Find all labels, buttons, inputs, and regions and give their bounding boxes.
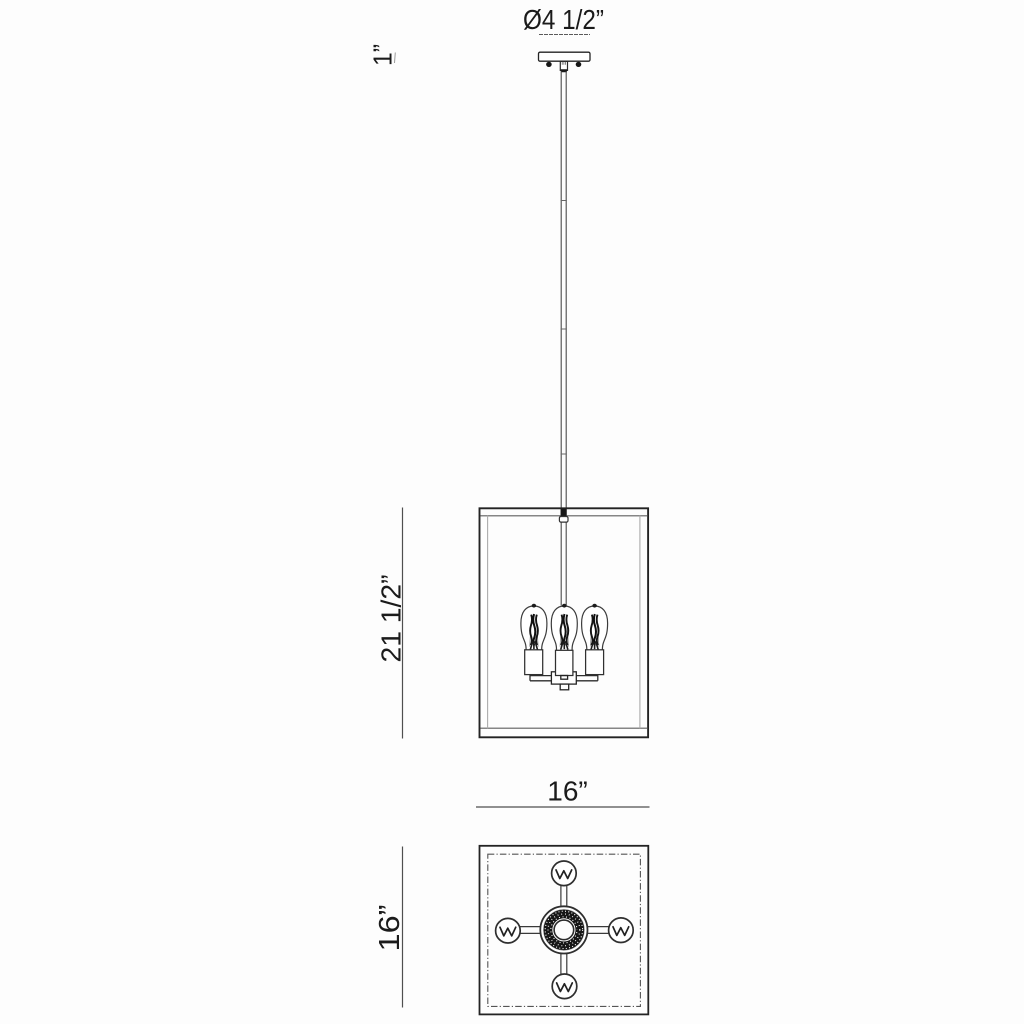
svg-text:21 1/2”: 21 1/2” <box>376 575 407 663</box>
svg-text:16”: 16” <box>374 905 406 952</box>
svg-text:Ø4 1/2”: Ø4 1/2” <box>523 4 604 35</box>
svg-text:1”: 1” <box>368 44 398 66</box>
svg-text:16”: 16” <box>547 776 587 807</box>
